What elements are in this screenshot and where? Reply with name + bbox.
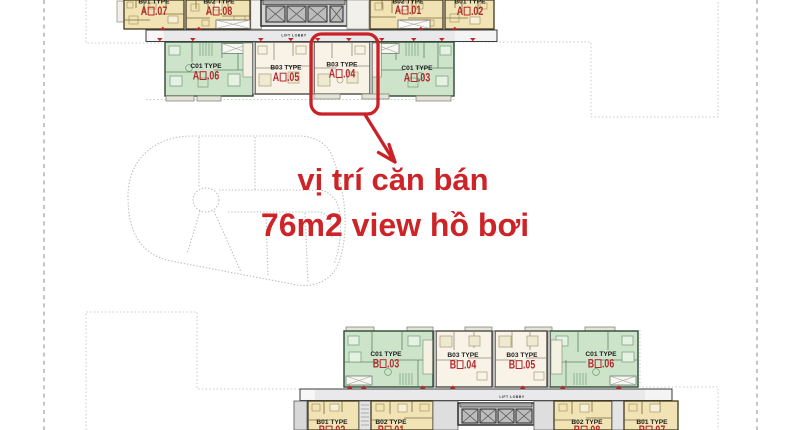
svg-text:.03: .03 (387, 359, 399, 371)
svg-text:B: B (450, 360, 456, 372)
svg-text:B: B (588, 359, 594, 371)
svg-text:B02 TYPE: B02 TYPE (203, 0, 235, 6)
svg-text:LIFT LOBBY: LIFT LOBBY (281, 34, 306, 38)
svg-text:.08: .08 (588, 425, 601, 430)
svg-text:A: A (404, 73, 410, 85)
svg-text:76m2 view hồ bơi: 76m2 view hồ bơi (261, 207, 529, 243)
svg-text:.06: .06 (207, 71, 219, 83)
svg-text:B: B (574, 425, 580, 430)
svg-text:.04: .04 (464, 360, 477, 372)
svg-text:.07: .07 (653, 425, 665, 430)
svg-text:.04: .04 (343, 69, 356, 81)
svg-text:.02: .02 (471, 6, 483, 18)
svg-text:B: B (509, 360, 515, 372)
svg-text:B01 TYPE: B01 TYPE (138, 0, 170, 6)
svg-text:A: A (206, 6, 212, 18)
svg-text:.06: .06 (602, 359, 614, 371)
svg-text:C01 TYPE: C01 TYPE (401, 65, 433, 72)
svg-text:.05: .05 (287, 72, 300, 84)
svg-text:A: A (273, 72, 279, 84)
svg-text:A: A (193, 71, 199, 83)
svg-text:C01 TYPE: C01 TYPE (585, 351, 617, 358)
svg-text:B: B (639, 425, 645, 430)
svg-text:LIFT LOBBY: LIFT LOBBY (499, 395, 524, 399)
svg-text:.02: .02 (333, 425, 345, 430)
svg-text:B03 TYPE: B03 TYPE (506, 352, 538, 359)
svg-text:B03 TYPE: B03 TYPE (326, 62, 358, 69)
svg-text:.03: .03 (418, 73, 430, 85)
svg-text:A: A (141, 6, 147, 18)
svg-text:B03 TYPE: B03 TYPE (270, 65, 302, 72)
svg-text:B: B (319, 425, 325, 430)
svg-text:.05: .05 (523, 360, 536, 372)
svg-text:C01 TYPE: C01 TYPE (190, 63, 222, 70)
svg-text:B01 TYPE: B01 TYPE (454, 0, 486, 6)
svg-text:.08: .08 (220, 6, 233, 18)
svg-text:C01 TYPE: C01 TYPE (370, 351, 402, 358)
svg-text:vị trí căn bán: vị trí căn bán (297, 162, 488, 197)
svg-text:A: A (395, 5, 401, 17)
svg-text:.07: .07 (155, 6, 167, 18)
svg-text:B03 TYPE: B03 TYPE (447, 352, 479, 359)
svg-text:A: A (457, 6, 463, 18)
svg-text:B: B (373, 359, 379, 371)
svg-text:.01: .01 (392, 425, 405, 430)
svg-text:A: A (329, 69, 335, 81)
svg-text:.01: .01 (409, 5, 422, 17)
svg-text:B: B (378, 425, 384, 430)
